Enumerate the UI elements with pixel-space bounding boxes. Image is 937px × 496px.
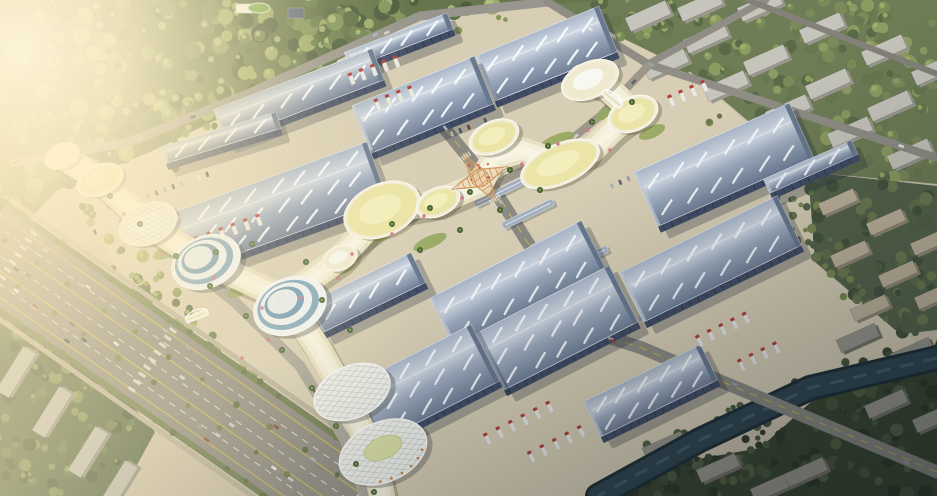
rendering-canvas xyxy=(0,0,937,496)
aerial-rendering-image xyxy=(0,0,937,496)
